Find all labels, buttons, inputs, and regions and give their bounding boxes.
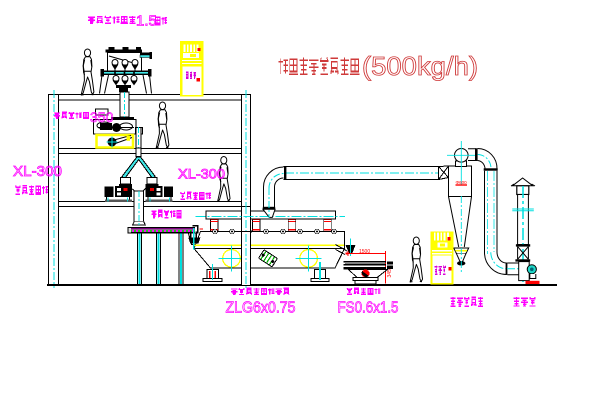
svg-text:350: 350 [90,109,114,125]
svg-text:FS0.6x1.5: FS0.6x1.5 [338,300,399,317]
svg-text:ZLG6x0.75: ZLG6x0.75 [226,300,296,317]
svg-text:XL-300: XL-300 [178,166,225,182]
svg-text:Φ600: Φ600 [456,180,468,185]
svg-text:345: 345 [387,269,393,278]
svg-text:1500: 1500 [359,249,370,255]
svg-text:XL-300: XL-300 [13,163,62,180]
svg-text:1.5: 1.5 [136,13,157,30]
svg-text:(500kg/h): (500kg/h) [362,51,478,81]
